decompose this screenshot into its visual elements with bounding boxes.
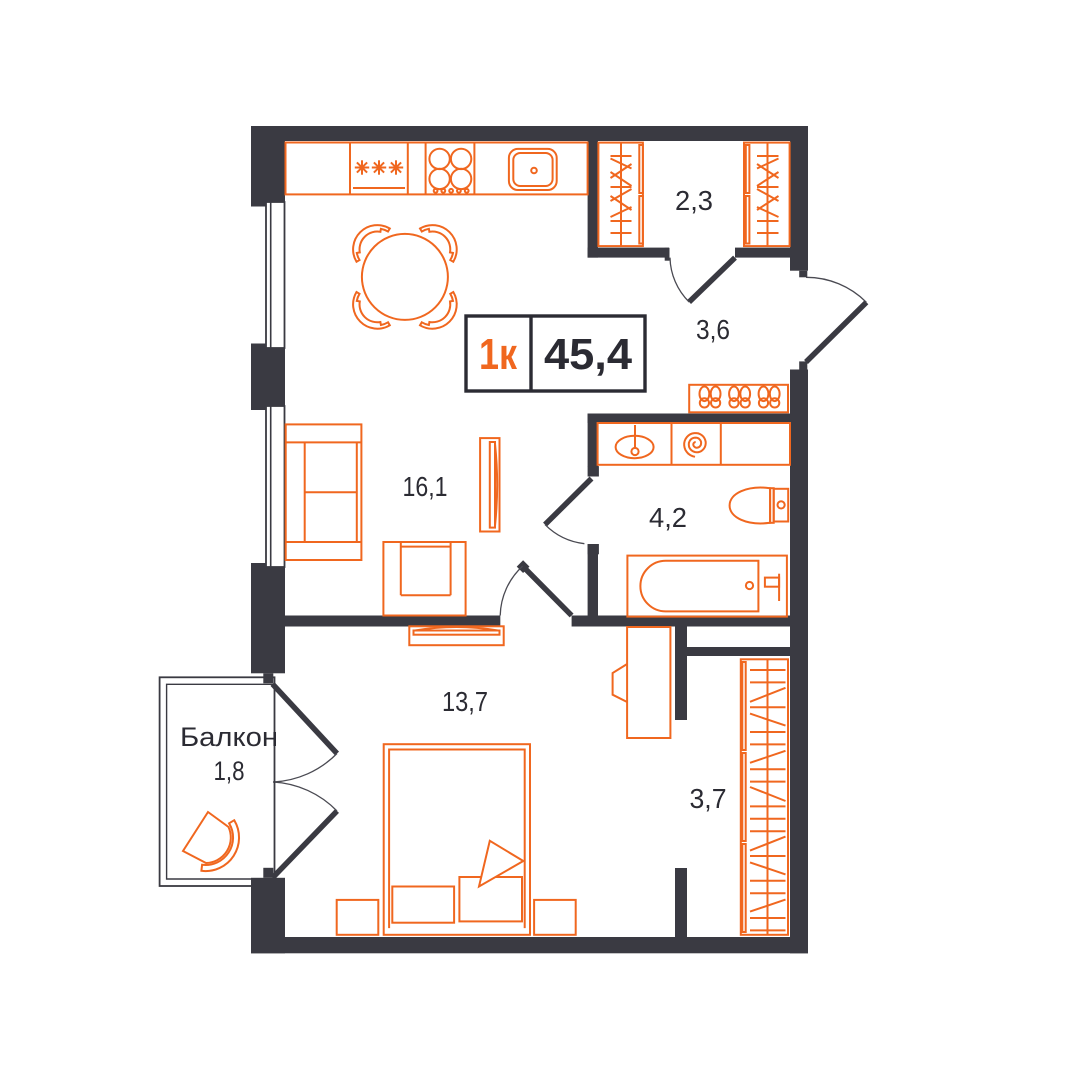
svg-text:16,1: 16,1: [403, 471, 448, 502]
svg-text:45,4: 45,4: [544, 330, 633, 379]
svg-text:1,8: 1,8: [214, 756, 245, 786]
svg-text:2,3: 2,3: [675, 185, 713, 216]
svg-text:3,7: 3,7: [690, 783, 727, 814]
svg-text:3,6: 3,6: [696, 314, 730, 345]
svg-text:13,7: 13,7: [442, 686, 488, 717]
svg-text:Балкон: Балкон: [180, 722, 278, 752]
svg-text:1к: 1к: [479, 330, 518, 379]
svg-text:4,2: 4,2: [649, 502, 687, 533]
